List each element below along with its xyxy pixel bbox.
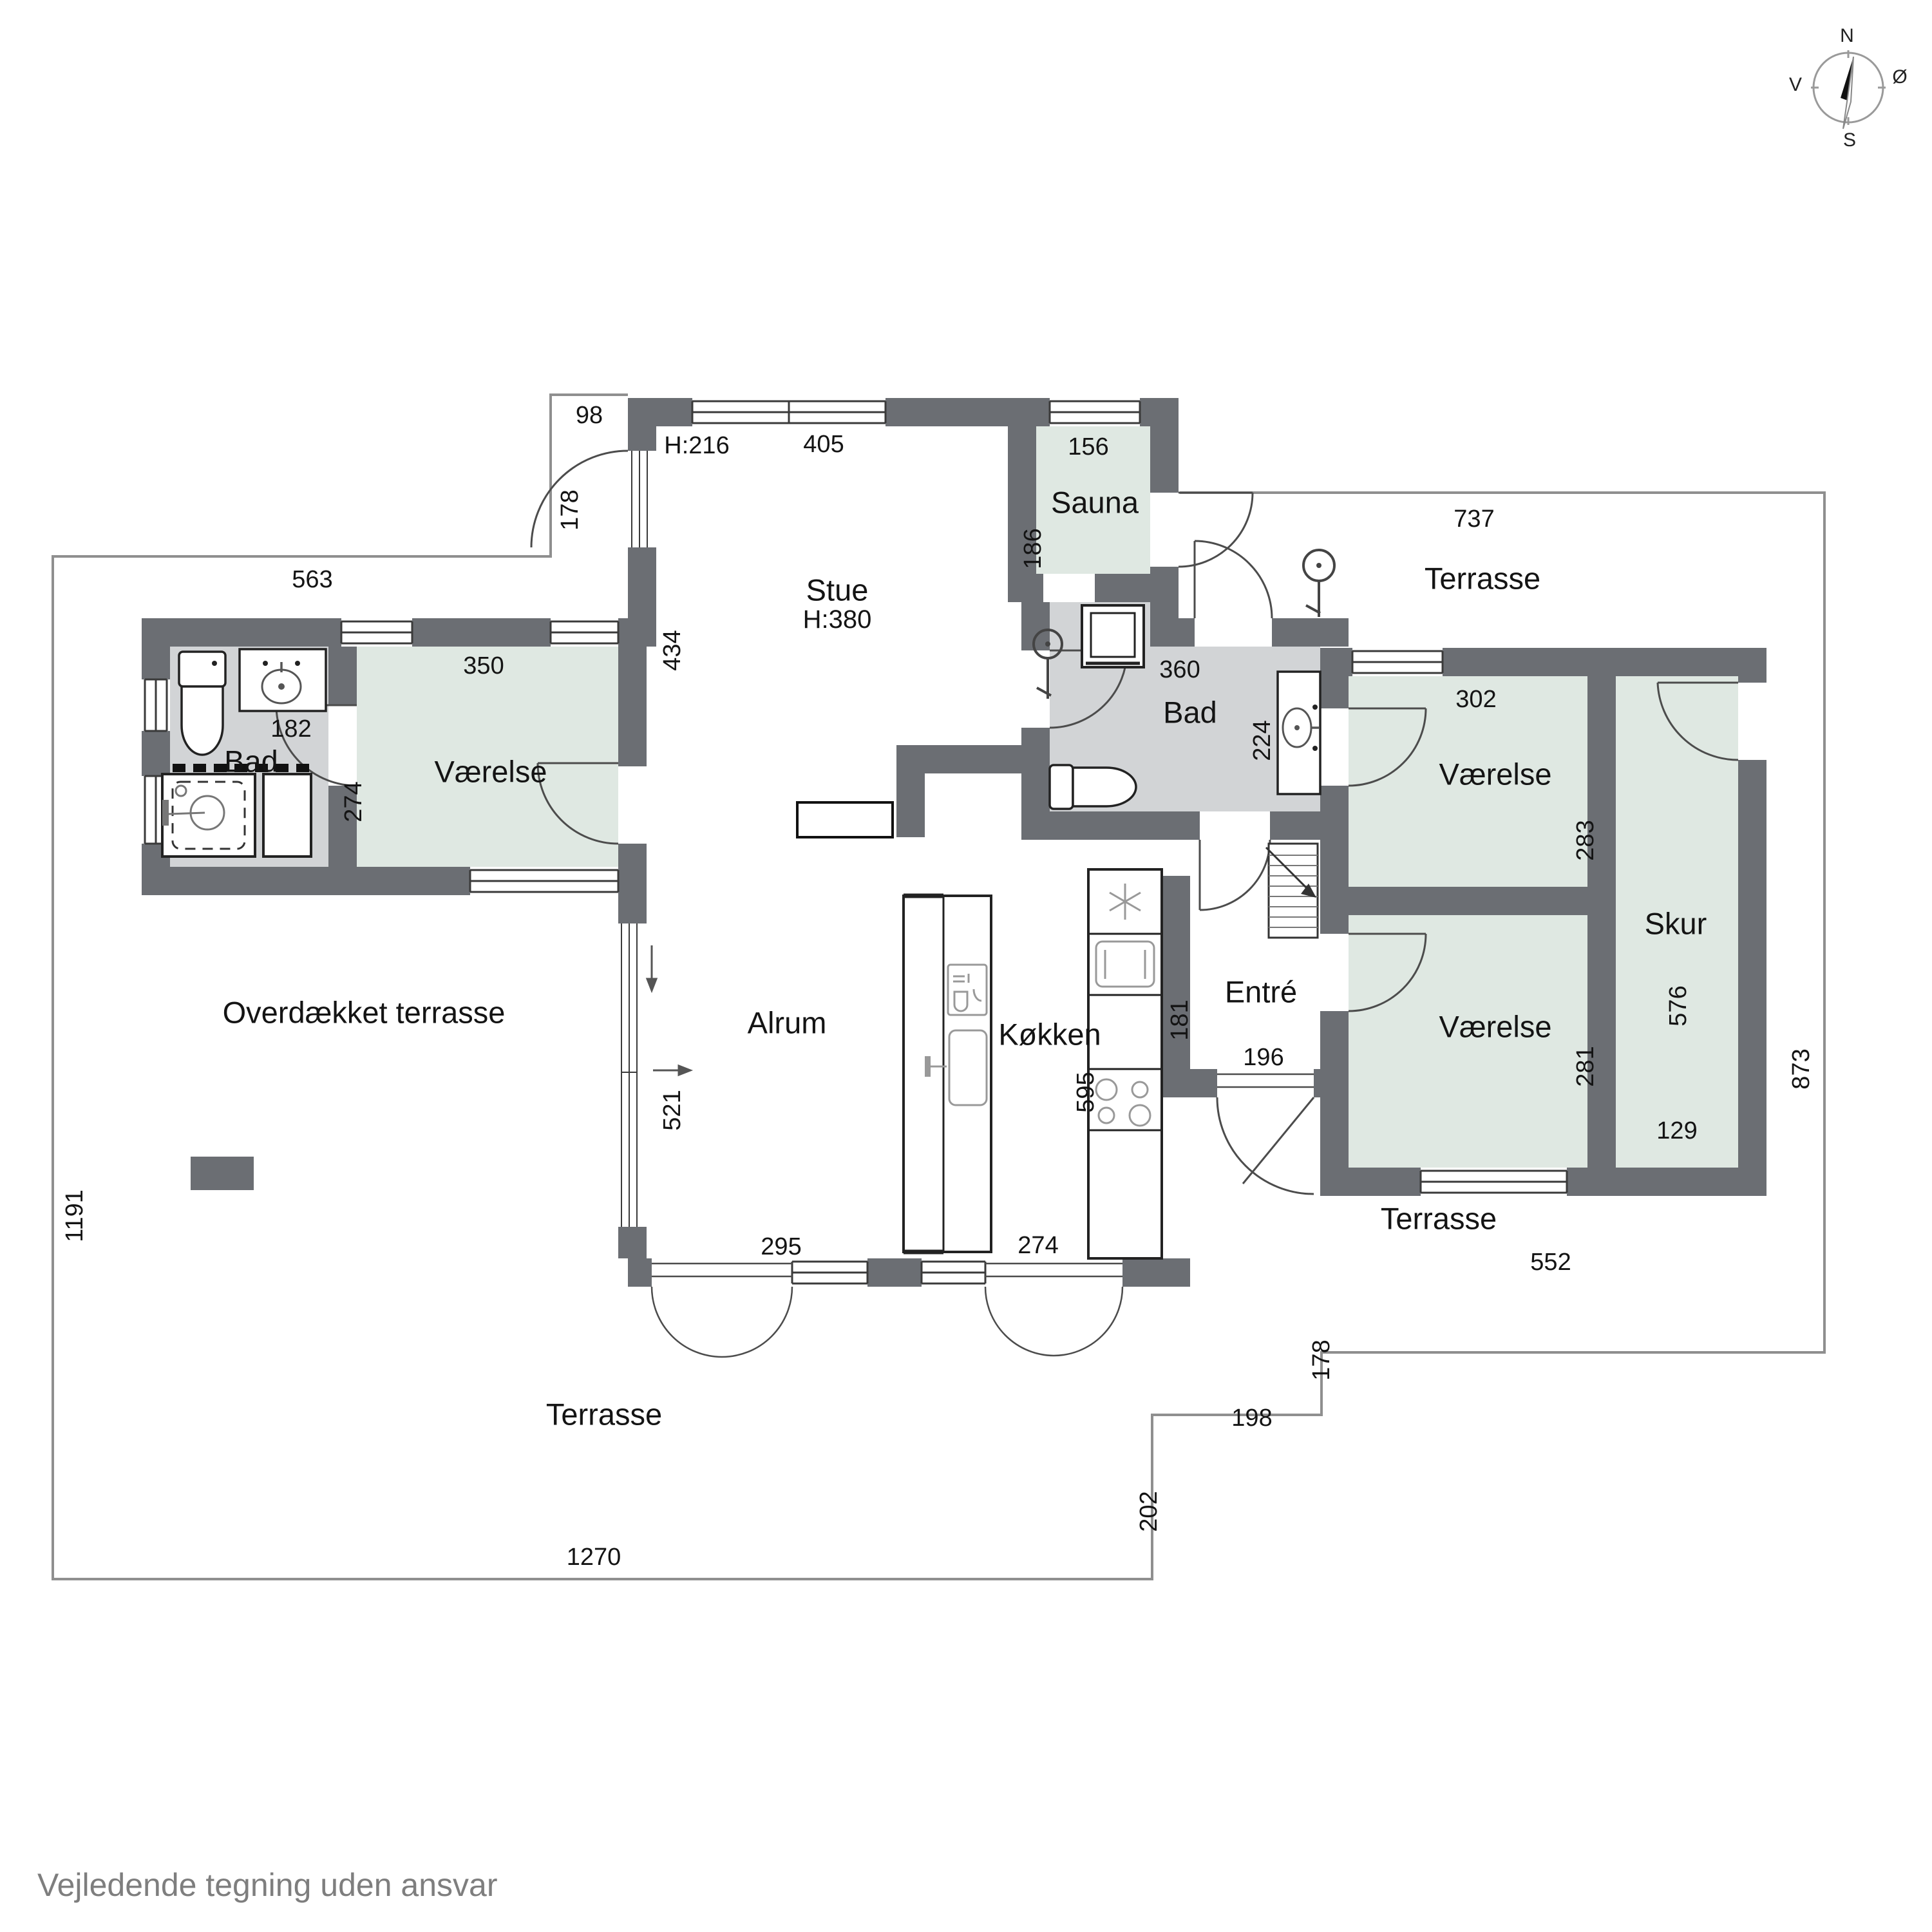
toilet-right-icon — [1050, 765, 1136, 809]
dim-521: 521 — [660, 1090, 685, 1130]
room-entre: Entré — [1225, 977, 1297, 1007]
dim-283: 283 — [1573, 820, 1598, 860]
dim-576: 576 — [1666, 985, 1690, 1026]
room-terrasse-bottom: Terrasse — [546, 1399, 662, 1430]
dim-202: 202 — [1137, 1491, 1161, 1531]
dim-350: 350 — [463, 654, 504, 678]
dim-196: 196 — [1243, 1045, 1283, 1070]
disclaimer-text: Vejledende tegning uden ansvar — [37, 1869, 497, 1901]
dim-156: 156 — [1068, 435, 1108, 459]
french-door-west — [652, 1264, 792, 1357]
compass-west-label: V — [1789, 75, 1802, 95]
compass-east-label: Ø — [1892, 68, 1907, 87]
dim-552: 552 — [1530, 1250, 1571, 1274]
dim-405: 405 — [803, 432, 844, 457]
fireplace-icon — [797, 802, 893, 837]
window-wing-bottom — [470, 867, 618, 895]
dim-129: 129 — [1656, 1119, 1697, 1143]
dim-h216: H:216 — [664, 433, 729, 458]
window-stue-west-door-glass — [630, 451, 649, 547]
cabinet-left-icon — [263, 774, 311, 857]
shower-left-icon — [162, 774, 255, 857]
room-terrasse-bottom-right: Terrasse — [1381, 1204, 1497, 1234]
room-alrum: Alrum — [748, 1008, 827, 1038]
door-entre-terrace — [1217, 1097, 1314, 1194]
dim-1191: 1191 — [62, 1189, 87, 1242]
dim-281: 281 — [1573, 1046, 1598, 1086]
room-terrasse-top: Terrasse — [1425, 563, 1540, 594]
dim-178-nw: 178 — [558, 489, 582, 530]
window-stue-north — [692, 398, 885, 426]
dim-186: 186 — [1021, 528, 1045, 569]
compass-south-label: S — [1843, 131, 1856, 150]
dim-295: 295 — [761, 1235, 801, 1259]
terrace-pillar — [191, 1157, 254, 1190]
room-koekken: Køkken — [998, 1019, 1101, 1050]
dim-178-se: 178 — [1309, 1340, 1334, 1380]
compass-north-label: N — [1840, 26, 1854, 46]
room-bad-left: Bad — [224, 746, 278, 777]
dim-1270: 1270 — [567, 1545, 621, 1569]
window-wing-top-2 — [551, 618, 618, 647]
room-sauna: Sauna — [1051, 488, 1139, 518]
room-stue: Stue — [806, 575, 869, 605]
window-sauna-north — [1050, 398, 1140, 426]
room-vaerelse-top-right: Værelse — [1439, 759, 1551, 790]
dim-181: 181 — [1168, 999, 1192, 1040]
window-wing-top-1 — [341, 618, 412, 647]
room-stue-height: H:380 — [803, 607, 872, 632]
room-overdaekket-terrasse: Overdækket terrasse — [223, 998, 506, 1028]
window-alrum-south-2 — [922, 1258, 985, 1287]
dim-360: 360 — [1159, 658, 1200, 682]
window-vaerelse-top-right-north — [1352, 648, 1443, 676]
dim-302: 302 — [1455, 687, 1496, 712]
dim-182: 182 — [270, 717, 311, 741]
sink-left-icon — [240, 649, 326, 711]
room-vaerelse-left: Værelse — [434, 757, 547, 787]
dim-563: 563 — [292, 567, 332, 592]
dim-98: 98 — [576, 403, 603, 428]
toilet-left-icon — [179, 652, 225, 755]
door-bad-right-terrace — [1195, 541, 1272, 618]
french-door-east — [985, 1264, 1122, 1356]
sink-right-icon — [1278, 672, 1320, 794]
dim-737: 737 — [1454, 507, 1494, 531]
compass — [1811, 50, 1886, 129]
slide-arrows — [647, 945, 690, 1075]
window-vaerelse-bottom-right-south — [1421, 1168, 1567, 1196]
dim-873: 873 — [1789, 1048, 1814, 1089]
compass-needle-icon — [1841, 57, 1853, 129]
dim-595: 595 — [1074, 1072, 1098, 1112]
dim-274-w: 274 — [341, 781, 366, 822]
room-bad-right: Bad — [1163, 697, 1217, 728]
dim-434: 434 — [660, 630, 685, 670]
window-alrum-west-glass — [620, 923, 639, 1227]
dim-274-s: 274 — [1018, 1233, 1058, 1258]
room-vaerelse-bottom-right: Værelse — [1439, 1012, 1551, 1042]
dim-224: 224 — [1250, 720, 1274, 761]
dim-198: 198 — [1231, 1406, 1272, 1430]
kitchen-counter — [1088, 869, 1162, 1258]
room-skur: Skur — [1645, 909, 1707, 939]
window-wing-left-1 — [142, 679, 170, 731]
floorplan-page: 98 178 H:216 405 156 Sauna 186 737 Terra… — [0, 0, 1932, 1932]
window-alrum-south-1 — [792, 1258, 867, 1287]
floorplan-drawing — [0, 0, 1932, 1932]
kitchen-island — [904, 896, 991, 1252]
outdoor-shower-icon — [1303, 550, 1334, 617]
door-bad-right-entre — [1200, 840, 1270, 910]
stairs-icon — [1266, 844, 1318, 938]
washer-icon — [1082, 605, 1144, 667]
